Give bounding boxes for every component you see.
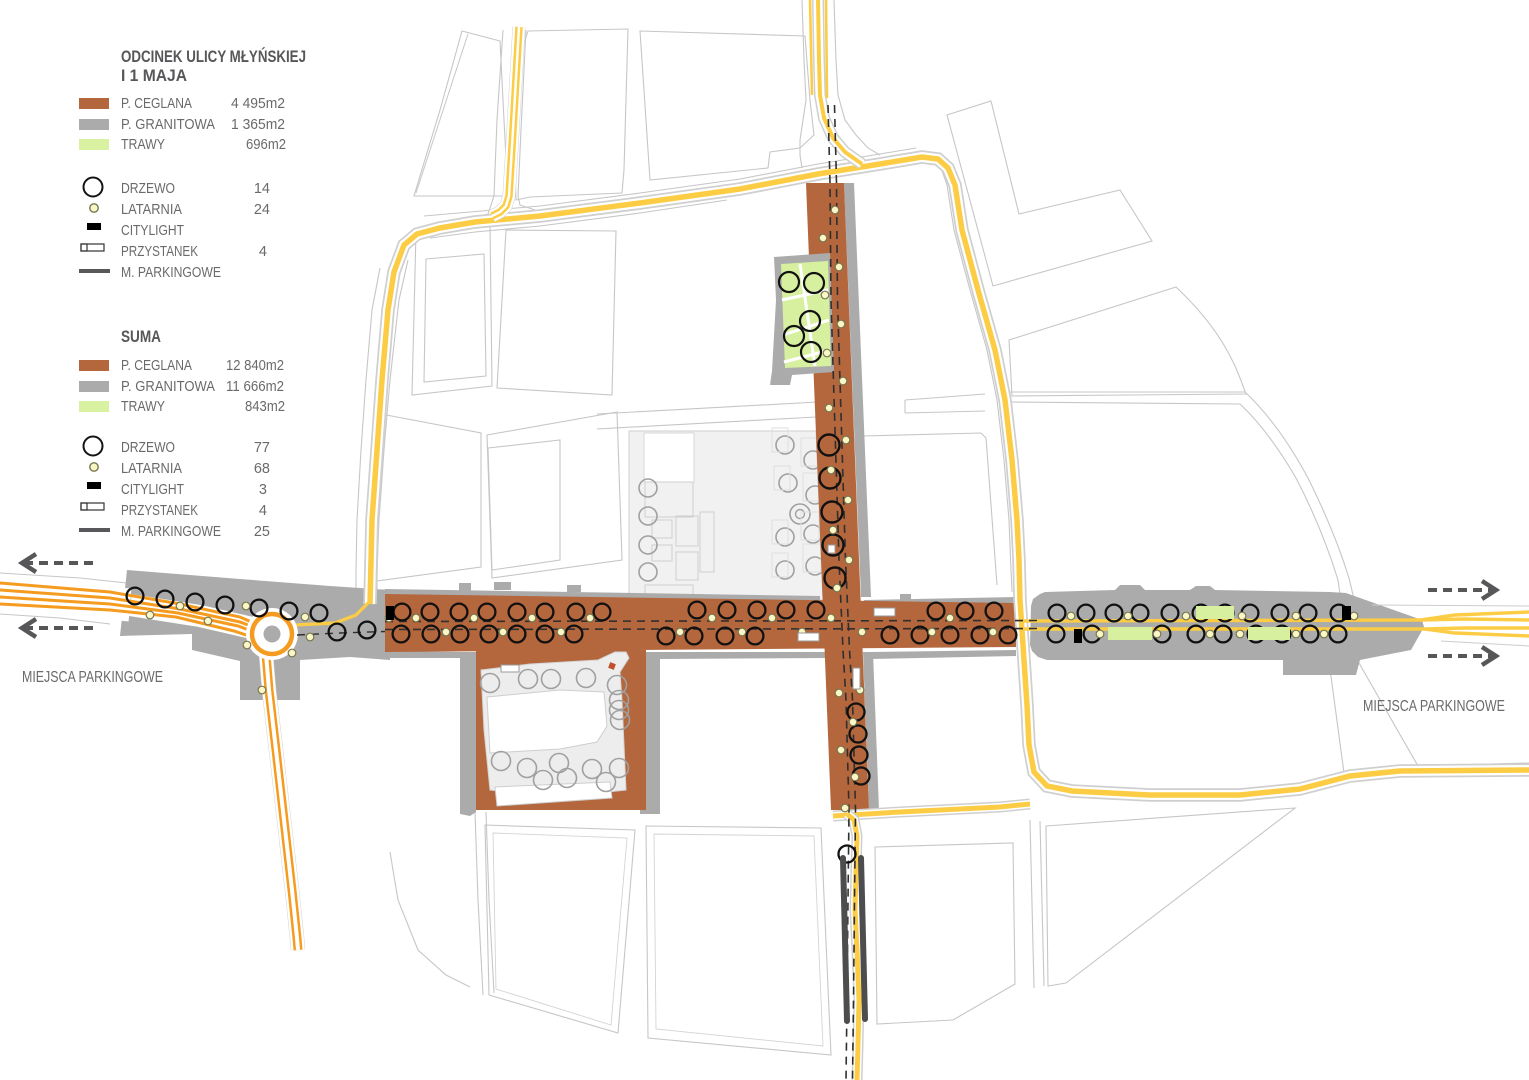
svg-text:TRAWY: TRAWY: [121, 137, 165, 153]
svg-text:24: 24: [254, 202, 270, 218]
svg-text:696m2: 696m2: [246, 137, 286, 153]
svg-text:4 495m2: 4 495m2: [231, 96, 285, 112]
svg-text:MIEJSCA PARKINGOWE: MIEJSCA PARKINGOWE: [1363, 698, 1505, 715]
svg-text:DRZEWO: DRZEWO: [121, 440, 175, 456]
svg-text:4: 4: [259, 503, 267, 519]
svg-text:12 840m2: 12 840m2: [226, 358, 284, 374]
svg-text:LATARNIA: LATARNIA: [121, 461, 182, 477]
svg-text:P. GRANITOWA: P. GRANITOWA: [121, 379, 215, 395]
svg-text:P. CEGLANA: P. CEGLANA: [121, 96, 192, 112]
svg-text:LATARNIA: LATARNIA: [121, 202, 182, 218]
svg-text:14: 14: [254, 181, 270, 197]
svg-text:P. CEGLANA: P. CEGLANA: [121, 358, 192, 374]
svg-text:PRZYSTANEK: PRZYSTANEK: [121, 503, 198, 519]
svg-text:11 666m2: 11 666m2: [226, 379, 284, 395]
svg-text:M. PARKINGOWE: M. PARKINGOWE: [121, 524, 221, 540]
svg-text:3: 3: [259, 482, 267, 498]
svg-text:P. GRANITOWA: P. GRANITOWA: [121, 117, 215, 133]
svg-text:I 1 MAJA: I 1 MAJA: [121, 67, 187, 85]
svg-text:M. PARKINGOWE: M. PARKINGOWE: [121, 265, 221, 281]
svg-text:MIEJSCA PARKINGOWE: MIEJSCA PARKINGOWE: [22, 669, 163, 686]
svg-text:25: 25: [254, 524, 270, 540]
svg-text:1 365m2: 1 365m2: [231, 117, 285, 133]
svg-text:CITYLIGHT: CITYLIGHT: [121, 223, 184, 239]
svg-text:DRZEWO: DRZEWO: [121, 181, 175, 197]
svg-text:TRAWY: TRAWY: [121, 399, 165, 415]
svg-text:ODCINEK ULICY MŁYŃSKIEJ: ODCINEK ULICY MŁYŃSKIEJ: [121, 47, 306, 66]
svg-text:PRZYSTANEK: PRZYSTANEK: [121, 244, 198, 260]
svg-text:77: 77: [254, 440, 270, 456]
svg-text:CITYLIGHT: CITYLIGHT: [121, 482, 184, 498]
svg-text:4: 4: [259, 244, 267, 260]
svg-text:68: 68: [254, 461, 270, 477]
svg-text:SUMA: SUMA: [121, 328, 161, 346]
svg-text:843m2: 843m2: [245, 399, 285, 415]
